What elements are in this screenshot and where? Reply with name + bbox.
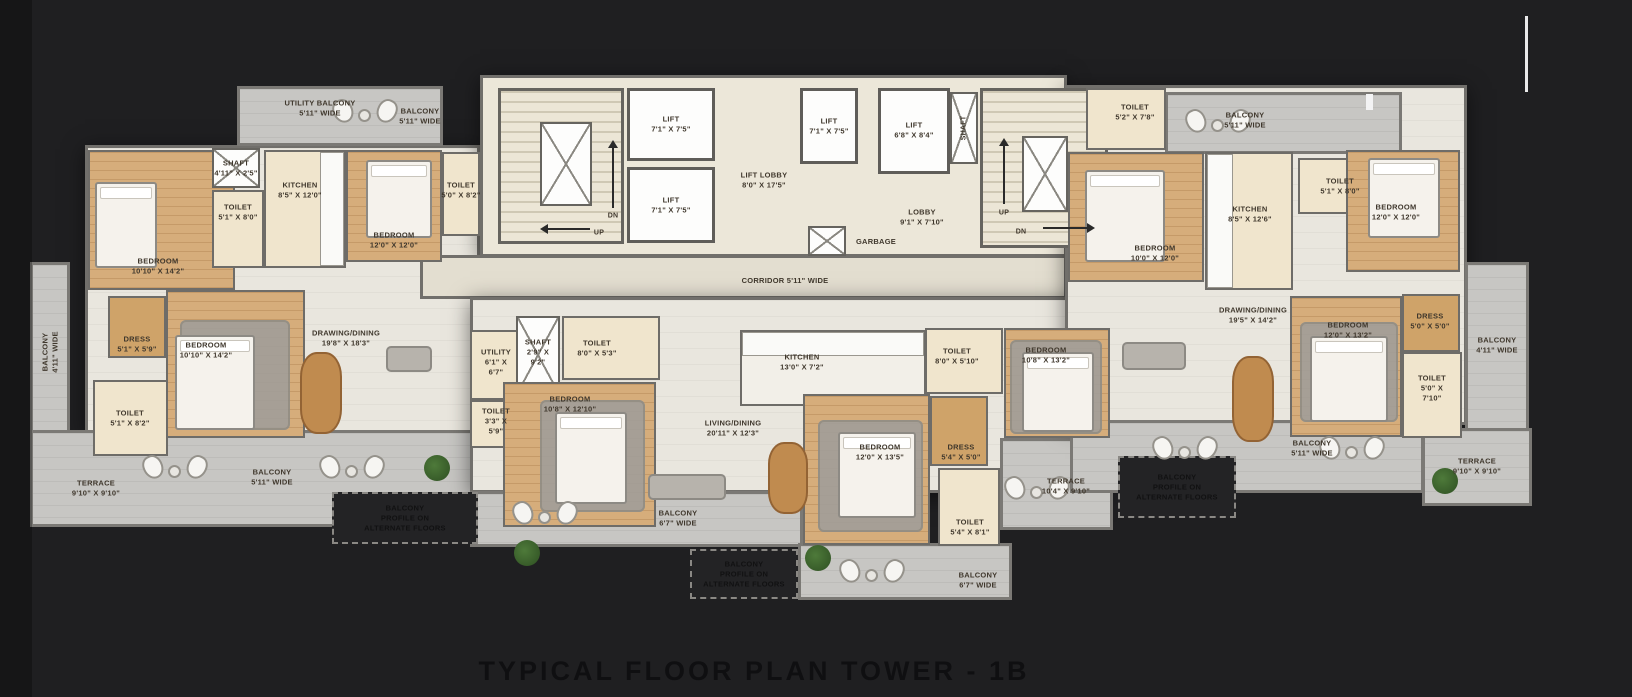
label-balcony-right-vert: BALCONY4'11" WIDE xyxy=(1476,335,1518,355)
label-line: GARBAGE xyxy=(856,237,896,247)
label-line: BEDROOM xyxy=(132,256,185,266)
label-line: UP xyxy=(594,228,604,237)
label-line: SHAFT xyxy=(525,337,551,347)
label-line: DRESS xyxy=(941,442,980,452)
label-line: 5'0" X 8'2" xyxy=(441,190,480,200)
bed-bedroom-center-left xyxy=(555,412,627,504)
direction-arrow-up xyxy=(608,140,618,208)
label-kitchen-left: KITCHEN8'5" X 12'0" xyxy=(278,180,322,200)
label-line: 9'2" xyxy=(525,357,551,367)
label-toilet-right-3: TOILET5'0" X7'10" xyxy=(1418,373,1446,402)
label-line: PROFILE ON xyxy=(703,569,785,579)
label-bedroom-center-2: BEDROOM12'0" X 13'5" xyxy=(856,442,904,462)
label-line: 12'0" X 13'2" xyxy=(1324,330,1372,340)
plan-title: TYPICAL FLOOR PLAN TOWER - 1B xyxy=(478,656,1029,687)
label-line: DN xyxy=(1016,227,1027,236)
label-line: BEDROOM xyxy=(1324,320,1372,330)
label-terrace-left: TERRACE9'10" X 9'10" xyxy=(72,478,120,498)
label-line: BEDROOM xyxy=(1372,202,1420,212)
label-line: TOILET xyxy=(482,406,510,416)
label-line: 12'0" X 12'0" xyxy=(1372,212,1420,222)
label-line: DRAWING/DINING xyxy=(1219,305,1287,315)
side-table-icon xyxy=(1345,446,1358,459)
label-line: 8'5" X 12'6" xyxy=(1228,214,1272,224)
sofa-left xyxy=(386,346,432,372)
label-line: 5'9" xyxy=(482,426,510,436)
label-balcony-left-vert: BALCONY4'11" WIDE xyxy=(40,331,60,373)
label-toilet-center-2: TOILET5'4" X 8'1" xyxy=(950,517,989,537)
arrow-line xyxy=(1043,227,1089,229)
lounge-chair xyxy=(183,452,211,482)
label-toilet-midright-top: TOILET5'2" X 7'8" xyxy=(1115,102,1154,122)
label-line: 6'8" X 8'4" xyxy=(894,130,933,140)
lounge-chair xyxy=(316,452,344,482)
side-table-icon xyxy=(1178,446,1191,459)
lounge-chair xyxy=(836,556,864,586)
direction-arrow-up xyxy=(999,138,1009,204)
label-line: CORRIDOR 5'11" WIDE xyxy=(742,276,829,286)
label-line: TERRACE xyxy=(1453,456,1501,466)
label-line: UTILITY xyxy=(481,347,511,357)
label-line: LIFT xyxy=(894,120,933,130)
label-line: 5'4" X 5'0" xyxy=(941,452,980,462)
dining-table-right xyxy=(1232,356,1274,442)
label-line: UTILITY BALCONY xyxy=(284,98,355,108)
label-line: TOILET xyxy=(218,202,257,212)
label-lift-4: LIFT6'8" X 8'4" xyxy=(894,120,933,140)
label-line: 4'11" WIDE xyxy=(50,331,60,373)
label-toilet-center-small: TOILET3'3" X5'9" xyxy=(482,406,510,435)
label-line: KITCHEN xyxy=(1228,204,1272,214)
lounge-chair xyxy=(1193,433,1221,463)
lounge-chair xyxy=(553,498,581,528)
arrow-line xyxy=(612,146,614,208)
label-line: ALTERNATE FLOORS xyxy=(1136,492,1218,502)
label-line: BEDROOM xyxy=(180,340,233,350)
label-line: TERRACE xyxy=(1042,476,1090,486)
label-balcony-bottom-left: BALCONY5'11" WIDE xyxy=(251,467,293,487)
label-line: BALCONY xyxy=(364,503,446,513)
label-toilet-left-3: TOILET5'1" X 8'2" xyxy=(110,408,149,428)
label-line: TOILET xyxy=(577,338,616,348)
label-line: 8'0" X 17'5" xyxy=(741,180,788,190)
bed-bedroom-top-left xyxy=(95,182,157,268)
label-line: BEDROOM xyxy=(1022,345,1070,355)
label-balcony-center-1: BALCONY6'7" WIDE xyxy=(659,508,698,528)
label-line: BALCONY xyxy=(40,331,50,373)
label-balcony-top-right: BALCONY5'11" WIDE xyxy=(1224,110,1266,130)
label-bedroom-left-3: BEDROOM10'10" X 14'2" xyxy=(180,340,233,360)
label-line: 12'0" X 12'0" xyxy=(370,240,418,250)
sofa-center xyxy=(648,474,726,500)
direction-arrow-left xyxy=(540,224,590,234)
label-line: 9'10" X 9'10" xyxy=(1453,466,1501,476)
label-line: TOILET xyxy=(1320,176,1359,186)
label-line: TERRACE xyxy=(72,478,120,488)
label-line: 10'4" X 9'10" xyxy=(1042,486,1090,496)
label-line: 10'0" X 12'0" xyxy=(1131,253,1179,263)
label-line: ALTERNATE FLOORS xyxy=(364,523,446,533)
label-line: BALCONY xyxy=(1136,472,1218,482)
label-balcony-profile-center: BALCONYPROFILE ONALTERNATE FLOORS xyxy=(703,559,785,588)
label-line: BALCONY xyxy=(399,106,441,116)
lounge-chair xyxy=(139,452,167,482)
label-line: 6'7" WIDE xyxy=(659,518,698,528)
plant xyxy=(424,455,450,481)
arrow-head-icon xyxy=(999,138,1009,146)
garbage-chute xyxy=(808,226,846,256)
label-line: 8'0" X 5'10" xyxy=(935,356,979,366)
arrow-head-icon xyxy=(540,224,548,234)
label-bedroom-right-2: BEDROOM12'0" X 12'0" xyxy=(1372,202,1420,222)
label-line: 4'11" WIDE xyxy=(1476,345,1518,355)
label-dn-right: DN xyxy=(1016,227,1027,236)
label-line: 5'0" X xyxy=(1418,383,1446,393)
label-line: BALCONY xyxy=(251,467,293,477)
label-line: LOBBY xyxy=(900,207,944,217)
label-line: TOILET xyxy=(1115,102,1154,112)
label-shaft-center: SHAFT2'9" X9'2" xyxy=(525,337,551,366)
label-line: PROFILE ON xyxy=(364,513,446,523)
label-line: 5'11" WIDE xyxy=(1291,448,1333,458)
plant xyxy=(805,545,831,571)
label-line: BEDROOM xyxy=(544,394,597,404)
label-dress-center: DRESS5'4" X 5'0" xyxy=(941,442,980,462)
label-dress-left: DRESS5'1" X 5'9" xyxy=(117,334,156,354)
label-kitchen-center: KITCHEN13'0" X 7'2" xyxy=(780,352,824,372)
label-balcony-bottom-right: BALCONY5'11" WIDE xyxy=(1291,438,1333,458)
counter-left xyxy=(320,152,344,266)
lounge-chairs xyxy=(840,557,904,587)
lounge-chairs xyxy=(143,453,207,483)
label-lift-lobby: LIFT LOBBY8'0" X 17'5" xyxy=(741,170,788,190)
label-line: DRAWING/DINING xyxy=(312,328,380,338)
label-line: 5'11" WIDE xyxy=(284,108,355,118)
label-line: DRESS xyxy=(1410,311,1449,321)
label-line: 9'10" X 9'10" xyxy=(72,488,120,498)
lounge-chairs xyxy=(320,453,384,483)
bed-bedroom-left-mid xyxy=(366,160,432,238)
dining-table-center xyxy=(768,442,808,514)
label-line: UP xyxy=(999,208,1009,217)
label-line: 8'5" X 12'0" xyxy=(278,190,322,200)
label-dn-left: DN xyxy=(608,211,619,220)
label-corridor: CORRIDOR 5'11" WIDE xyxy=(742,276,829,286)
label-bedroom-center-1: BEDROOM10'8" X 12'10" xyxy=(544,394,597,414)
label-line: LIFT xyxy=(809,116,848,126)
lounge-chairs xyxy=(1153,434,1217,464)
white-line-artifact xyxy=(1525,16,1528,92)
label-line: LIVING/DINING xyxy=(705,418,762,428)
label-line: 5'1" X 8'0" xyxy=(1320,186,1359,196)
label-line: 19'5" X 14'2" xyxy=(1219,315,1287,325)
lounge-chair xyxy=(373,96,401,126)
label-line: BEDROOM xyxy=(856,442,904,452)
arrow-line xyxy=(1003,144,1005,204)
side-table-icon xyxy=(538,511,551,524)
side-table-icon xyxy=(358,109,371,122)
label-line: KITCHEN xyxy=(278,180,322,190)
screenshot-root: UTILITY BALCONY5'11" WIDEBALCONY5'11" WI… xyxy=(0,0,1632,697)
direction-arrow-right xyxy=(1043,223,1095,233)
label-lift-2: LIFT7'1" X 7'5" xyxy=(651,195,690,215)
label-line: 7'1" X 7'5" xyxy=(651,205,690,215)
label-balcony-center-2: BALCONY6'7" WIDE xyxy=(959,570,998,590)
label-up-right: UP xyxy=(999,208,1009,217)
label-toilet-right-1: TOILET5'1" X 8'0" xyxy=(1320,176,1359,196)
label-line: 10'10" X 14'2" xyxy=(132,266,185,276)
label-line: 5'2" X 7'8" xyxy=(1115,112,1154,122)
label-line: BALCONY xyxy=(659,508,698,518)
label-bedroom-top-left: BEDROOM10'10" X 14'2" xyxy=(132,256,185,276)
arrow-line xyxy=(546,228,590,230)
label-living-dining: LIVING/DINING20'11" X 12'3" xyxy=(705,418,762,438)
lounge-chair xyxy=(1182,106,1210,136)
label-line: 7'1" X 7'5" xyxy=(809,126,848,136)
sofa-right xyxy=(1122,342,1186,370)
label-line: BALCONY xyxy=(959,570,998,580)
label-dress-right: DRESS5'0" X 5'0" xyxy=(1410,311,1449,331)
label-up-left: UP xyxy=(594,228,604,237)
label-lift-1: LIFT7'1" X 7'5" xyxy=(651,114,690,134)
label-line: 5'11" WIDE xyxy=(399,116,441,126)
label-line: KITCHEN xyxy=(780,352,824,362)
label-line: BALCONY xyxy=(703,559,785,569)
arrow-head-icon xyxy=(608,140,618,148)
label-line: 10'10" X 14'2" xyxy=(180,350,233,360)
label-balcony-profile-right: BALCONYPROFILE ONALTERNATE FLOORS xyxy=(1136,472,1218,501)
label-lobby: LOBBY9'1" X 7'10" xyxy=(900,207,944,227)
label-toilet-left-1: TOILET5'1" X 8'0" xyxy=(218,202,257,222)
label-line: DRESS xyxy=(117,334,156,344)
label-line: 5'11" WIDE xyxy=(251,477,293,487)
label-line: 7'10" xyxy=(1418,393,1446,403)
label-line: 12'0" X 13'5" xyxy=(856,452,904,462)
label-toilet-left-2: TOILET5'0" X 8'2" xyxy=(441,180,480,200)
dining-table-left xyxy=(300,352,342,434)
stairs-right-landing xyxy=(1022,136,1068,212)
label-line: SHAFT xyxy=(959,116,968,141)
label-line: 9'1" X 7'10" xyxy=(900,217,944,227)
label-line: 3'3" X xyxy=(482,416,510,426)
label-line: 2'9" X xyxy=(525,347,551,357)
label-shaft-core: SHAFT xyxy=(959,116,968,141)
label-line: 13'0" X 7'2" xyxy=(780,362,824,372)
label-line: LIFT xyxy=(651,195,690,205)
label-line: PROFILE ON xyxy=(1136,482,1218,492)
label-line: 6'7" WIDE xyxy=(959,580,998,590)
bed-bedroom-right-corner xyxy=(1368,158,1440,238)
label-drawing-dining-right: DRAWING/DINING19'5" X 14'2" xyxy=(1219,305,1287,325)
label-line: BALCONY xyxy=(1291,438,1333,448)
label-line: 4'11" X 2'5" xyxy=(214,168,257,178)
label-line: 5'1" X 5'9" xyxy=(117,344,156,354)
label-kitchen-right: KITCHEN8'5" X 12'6" xyxy=(1228,204,1272,224)
lounge-chair xyxy=(1360,433,1388,463)
label-line: 19'8" X 18'3" xyxy=(312,338,380,348)
label-line: TOILET xyxy=(110,408,149,418)
label-line: 5'1" X 8'0" xyxy=(218,212,257,222)
lounge-chair xyxy=(360,452,388,482)
counter-center xyxy=(742,332,924,356)
lounge-chair xyxy=(509,498,537,528)
label-line: 6'7" xyxy=(481,367,511,377)
label-lift-3: LIFT7'1" X 7'5" xyxy=(809,116,848,136)
lounge-chair xyxy=(1001,473,1029,503)
label-line: 5'4" X 8'1" xyxy=(950,527,989,537)
plant xyxy=(514,540,540,566)
label-terrace-right: TERRACE9'10" X 9'10" xyxy=(1453,456,1501,476)
label-line: BALCONY xyxy=(1224,110,1266,120)
lounge-chair xyxy=(880,556,908,586)
label-line: LIFT xyxy=(651,114,690,124)
label-line: DN xyxy=(608,211,619,220)
bed-bedroom-right-lower xyxy=(1310,336,1388,422)
side-table-icon xyxy=(865,569,878,582)
label-utility-balcony-top: UTILITY BALCONY5'11" WIDE xyxy=(284,98,355,118)
label-drawing-dining-left: DRAWING/DINING19'8" X 18'3" xyxy=(312,328,380,348)
label-line: BEDROOM xyxy=(370,230,418,240)
label-line: 10'8" X 12'10" xyxy=(544,404,597,414)
label-bedroom-left-2: BEDROOM12'0" X 12'0" xyxy=(370,230,418,250)
side-table-icon xyxy=(345,465,358,478)
arrow-head-icon xyxy=(1087,223,1095,233)
label-balcony-profile-left: BALCONYPROFILE ONALTERNATE FLOORS xyxy=(364,503,446,532)
label-garbage: GARBAGE xyxy=(856,237,896,247)
label-line: TOILET xyxy=(441,180,480,190)
label-line: TOILET xyxy=(950,517,989,527)
label-line: 8'0" X 5'3" xyxy=(577,348,616,358)
label-toilet-center-1: TOILET8'0" X 5'3" xyxy=(577,338,616,358)
label-line: TOILET xyxy=(1418,373,1446,383)
label-line: BALCONY xyxy=(1476,335,1518,345)
label-balcony-top-left: BALCONY5'11" WIDE xyxy=(399,106,441,126)
label-line: 5'1" X 8'2" xyxy=(110,418,149,428)
white-dot-artifact xyxy=(1366,94,1373,110)
label-line: 5'11" WIDE xyxy=(1224,120,1266,130)
label-line: 20'11" X 12'3" xyxy=(705,428,762,438)
label-toilet-midright: TOILET8'0" X 5'10" xyxy=(935,346,979,366)
label-line: 5'0" X 5'0" xyxy=(1410,321,1449,331)
side-table-icon xyxy=(1211,119,1224,132)
label-terrace-center: TERRACE10'4" X 9'10" xyxy=(1042,476,1090,496)
label-line: LIFT LOBBY xyxy=(741,170,788,180)
label-line: ALTERNATE FLOORS xyxy=(703,579,785,589)
left-edge-shade xyxy=(0,0,32,697)
label-line: TOILET xyxy=(935,346,979,356)
label-bedroom-right-3: BEDROOM12'0" X 13'2" xyxy=(1324,320,1372,340)
label-bedroom-right-1: BEDROOM10'0" X 12'0" xyxy=(1131,243,1179,263)
label-line: 7'1" X 7'5" xyxy=(651,124,690,134)
label-line: SHAFT xyxy=(214,158,257,168)
label-line: 10'8" X 13'2" xyxy=(1022,355,1070,365)
side-table-icon xyxy=(168,465,181,478)
label-line: BEDROOM xyxy=(1131,243,1179,253)
label-bedroom-midright: BEDROOM10'8" X 13'2" xyxy=(1022,345,1070,365)
lounge-chair xyxy=(1149,433,1177,463)
lounge-chairs xyxy=(513,499,577,529)
label-line: 6'1" X xyxy=(481,357,511,367)
label-utility-room: UTILITY6'1" X6'7" xyxy=(481,347,511,376)
label-shaft-left: SHAFT4'11" X 2'5" xyxy=(214,158,257,178)
stairs-left-landing xyxy=(540,122,592,206)
